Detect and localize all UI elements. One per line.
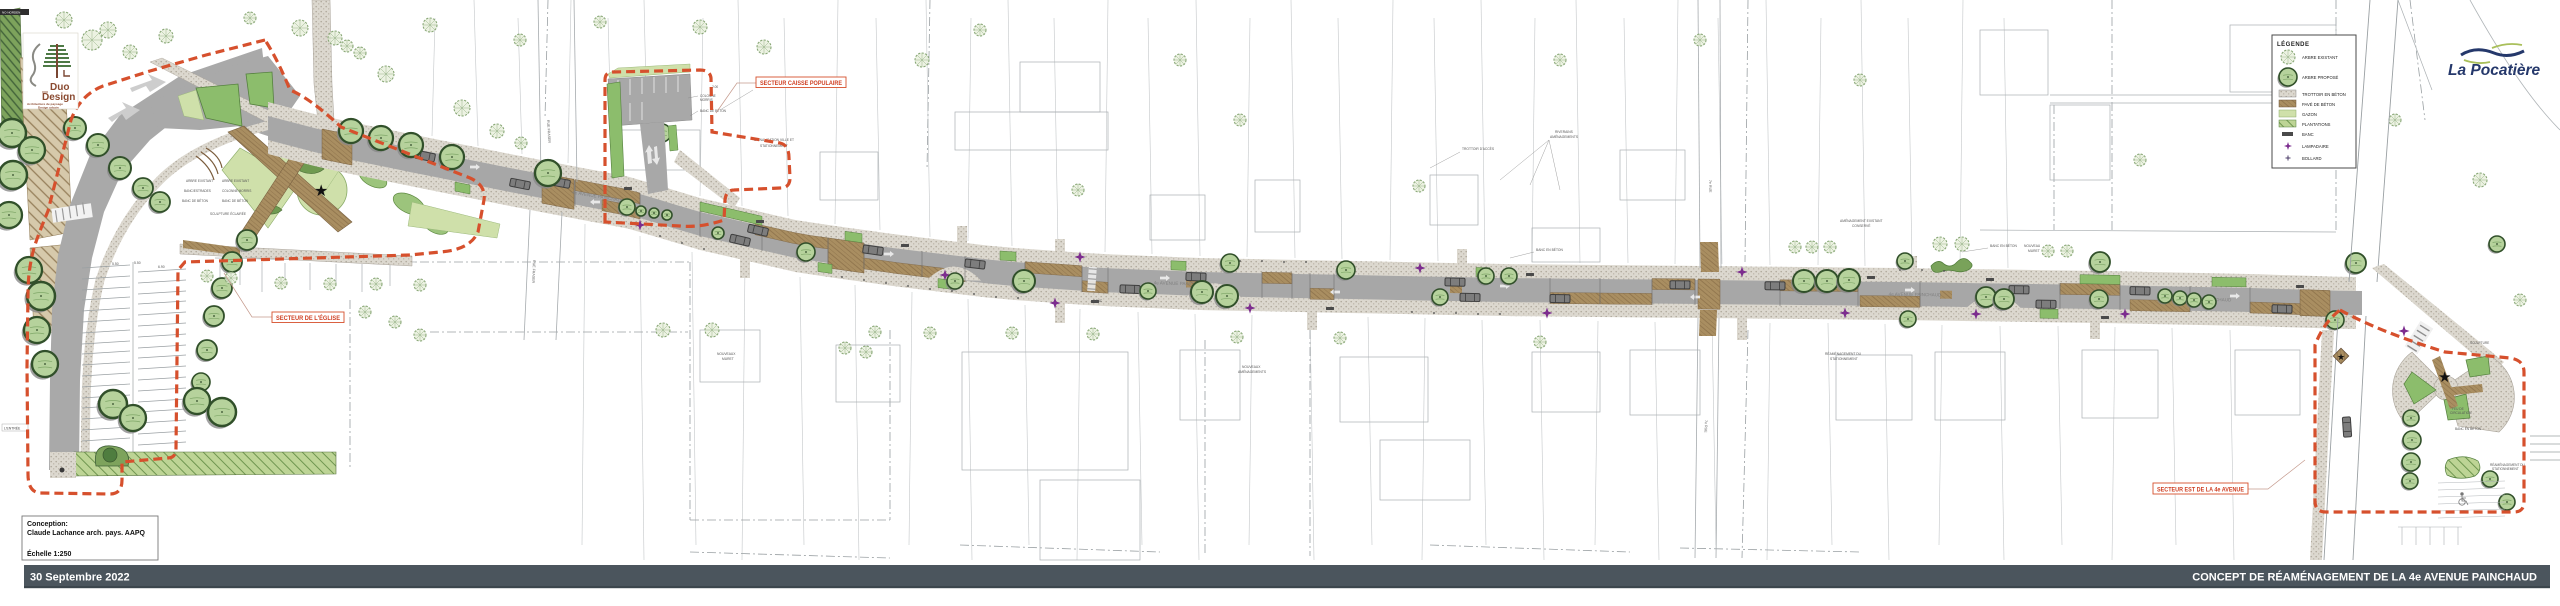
svg-text:★: ★ — [314, 183, 328, 200]
svg-text:4e AVENUE PAINCHAUD: 4e AVENUE PAINCHAUD — [1889, 292, 1942, 298]
svg-text:SECTEUR DE L'ÉGLISE: SECTEUR DE L'ÉGLISE — [276, 314, 340, 322]
svg-text:Claude Lachance arch. pays. AA: Claude Lachance arch. pays. AAPQ — [27, 530, 146, 537]
svg-text:BANC: BANC — [2302, 132, 2314, 137]
svg-text:ARBRE PROPOSÉ: ARBRE PROPOSÉ — [2302, 75, 2339, 80]
svg-text:AMÉNAGEMENTS: AMÉNAGEMENTS — [1238, 369, 1267, 374]
svg-text:SECTEUR EST DE LA 4e AVENUE: SECTEUR EST DE LA 4e AVENUE — [2157, 487, 2245, 494]
svg-text:COLONNE MORRIS: COLONNE MORRIS — [222, 189, 251, 193]
svg-text:Conception:: Conception: — [27, 521, 68, 528]
svg-text:PLANTATIONS: PLANTATIONS — [2302, 122, 2331, 127]
svg-text:BANC/ESTRADES: BANC/ESTRADES — [184, 189, 211, 193]
svg-text:LAMPADAIRE: LAMPADAIRE — [2302, 144, 2329, 149]
svg-text:ARBRE EXISTANT: ARBRE EXISTANT — [186, 179, 213, 183]
svg-text:7e RUE: 7e RUE — [1704, 420, 1708, 433]
svg-text:★: ★ — [2337, 352, 2345, 362]
svg-text:RUE FRASER: RUE FRASER — [531, 260, 536, 284]
svg-text:PAVÉ DE BÉTON: PAVÉ DE BÉTON — [2302, 102, 2335, 107]
svg-text:LÉGENDE: LÉGENDE — [2277, 40, 2310, 48]
svg-text:Design urbain: Design urbain — [38, 106, 59, 110]
svg-text:NOUVEAUX: NOUVEAUX — [717, 352, 736, 356]
svg-text:5.50: 5.50 — [112, 262, 119, 266]
svg-text:SCULPTURE: SCULPTURE — [2470, 341, 2489, 345]
svg-text:BANC: BANC — [1093, 299, 1103, 303]
svg-text:SCULPTURE ÉCLAIRÉE: SCULPTURE ÉCLAIRÉE — [210, 211, 246, 216]
svg-text:MURET: MURET — [2028, 249, 2040, 253]
svg-text:5.50: 5.50 — [134, 261, 141, 265]
svg-text:STATIONNEMENT: STATIONNEMENT — [1830, 357, 1858, 361]
svg-text:30 Septembre 2022: 30 Septembre 2022 — [30, 572, 130, 584]
svg-text:6.90: 6.90 — [158, 265, 165, 269]
svg-text:RIVERAINS: RIVERAINS — [1555, 130, 1574, 134]
svg-text:TROTTOIR EN BÉTON: TROTTOIR EN BÉTON — [2302, 92, 2346, 97]
svg-text:NO NORDEN: NO NORDEN — [2, 11, 20, 15]
svg-text:BANC DE BÉTON: BANC DE BÉTON — [182, 198, 209, 203]
svg-text:RÉAMÉNAGEMENT DU: RÉAMÉNAGEMENT DU — [1825, 351, 1862, 356]
svg-text:BANC EN BÉTON: BANC EN BÉTON — [1990, 243, 2017, 248]
svg-text:La Pocatière: La Pocatière — [2448, 62, 2541, 79]
svg-text:Échelle 1:250: Échelle 1:250 — [27, 549, 71, 558]
svg-text:CIRCULATION: CIRCULATION — [2450, 411, 2472, 415]
svg-text:★: ★ — [2438, 369, 2451, 386]
svg-text:ARBRE EXISTANT: ARBRE EXISTANT — [2302, 55, 2338, 60]
svg-text:ARBRE EXISTANT: ARBRE EXISTANT — [222, 179, 249, 183]
svg-text:STATIONNEMENT: STATIONNEMENT — [2492, 467, 2519, 471]
svg-text:AMÉNAGEMENTS: AMÉNAGEMENTS — [1550, 134, 1579, 139]
svg-text:7e RUE: 7e RUE — [1708, 180, 1712, 193]
svg-text:BOLLARD: BOLLARD — [2302, 156, 2322, 161]
svg-text:L'ENTRÉE: L'ENTRÉE — [4, 426, 21, 431]
svg-text:CONSERVÉ: CONSERVÉ — [1852, 223, 1871, 228]
svg-text:NOUVEAU: NOUVEAU — [2024, 244, 2041, 248]
svg-text:BANC DE BÉTON: BANC DE BÉTON — [700, 108, 727, 113]
svg-text:SIGNALISATION VILLE ET: SIGNALISATION VILLE ET — [754, 138, 794, 142]
svg-text:NOUVEAUX: NOUVEAUX — [1242, 365, 1261, 369]
svg-text:CONCEPT DE RÉAMÉNAGEMENT DE LA: CONCEPT DE RÉAMÉNAGEMENT DE LA 4e AVENUE… — [2192, 571, 2537, 584]
svg-text:SECTEUR CAISSE POPULAIRE: SECTEUR CAISSE POPULAIRE — [760, 80, 842, 87]
svg-text:TROTTOIR D'ACCÈS: TROTTOIR D'ACCÈS — [1462, 146, 1495, 151]
svg-text:BANC EN BÉTON: BANC EN BÉTON — [2455, 426, 2482, 431]
svg-text:GAZON: GAZON — [2302, 112, 2317, 117]
svg-text:MURET: MURET — [722, 357, 734, 361]
svg-text:AMÉNAGEMENT EXISTANT: AMÉNAGEMENT EXISTANT — [1840, 218, 1883, 223]
svg-text:BANC DE BÉTON: BANC DE BÉTON — [222, 198, 249, 203]
svg-text:2.00: 2.00 — [712, 85, 718, 89]
svg-text:BANC EN BÉTON: BANC EN BÉTON — [1536, 247, 1563, 252]
